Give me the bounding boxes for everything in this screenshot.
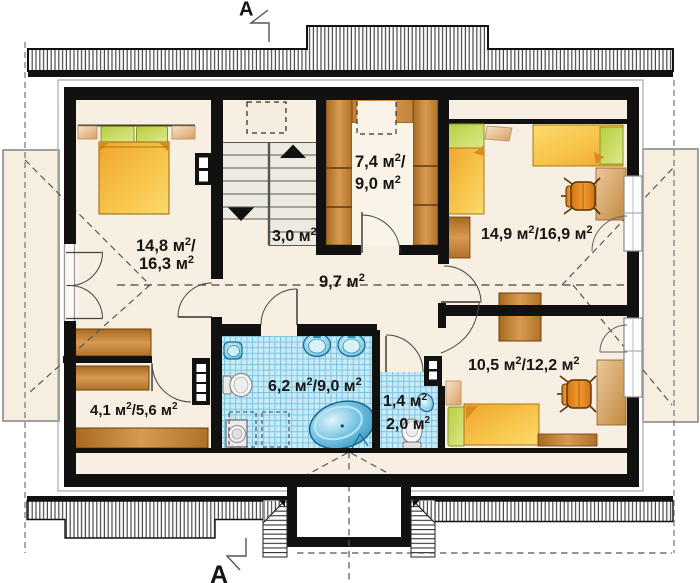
svg-text:14,9 м2/16,9 м2: 14,9 м2/16,9 м2 [481,224,593,243]
svg-text:9,7 м2: 9,7 м2 [319,272,365,291]
svg-text:2,0 м2: 2,0 м2 [386,415,431,433]
svg-text:3,0 м2: 3,0 м2 [272,226,317,245]
svg-text:1,4 м2: 1,4 м2 [383,392,428,410]
svg-text:9,0 м2: 9,0 м2 [355,174,401,193]
svg-text:A: A [210,561,228,583]
svg-text:16,3 м2: 16,3 м2 [139,254,194,273]
svg-text:6,2 м2/9,0 м2: 6,2 м2/9,0 м2 [268,376,362,395]
svg-text:4,1 м2/5,6 м2: 4,1 м2/5,6 м2 [90,401,178,419]
svg-text:A: A [239,0,253,21]
svg-text:10,5 м2/12,2 м2: 10,5 м2/12,2 м2 [468,355,580,374]
